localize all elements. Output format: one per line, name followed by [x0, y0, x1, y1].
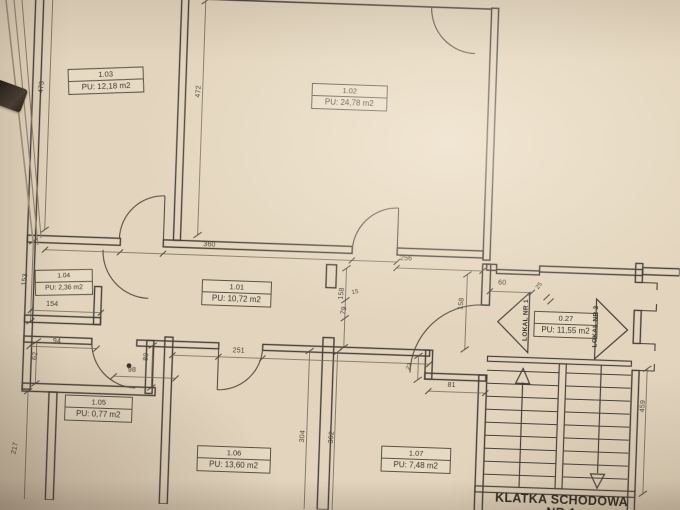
room-label-1-03: 1.03 PU: 12,18 m2: [68, 66, 145, 95]
down-arrow-icon: [590, 474, 604, 488]
room-area: PU: 10,72 m2: [202, 292, 270, 306]
dim-256: 256: [400, 255, 413, 262]
room-number: 1.04: [36, 270, 92, 283]
room-area: PU: 2,36 m2: [36, 282, 92, 295]
dim-81: 81: [447, 382, 455, 389]
dim-304: 304: [299, 430, 307, 443]
room-area: PU: 11,55 m2: [534, 324, 596, 338]
room-label-1-07: 1.07 PU: 7,48 m2: [380, 446, 451, 474]
staircase-label: KLATKA SCHODOWA NR 1: [487, 491, 636, 510]
dim-60: 60: [498, 280, 506, 287]
staircase: [475, 356, 640, 498]
room-area: PU: 13,60 m2: [197, 458, 269, 473]
down-arrow-shaft: [598, 365, 602, 473]
dim-459: 459: [639, 400, 647, 413]
radiator-symbol: [326, 265, 337, 288]
dim-472: 472: [195, 85, 203, 98]
dim-15: 15: [351, 289, 359, 296]
dim-158-left: 158: [338, 287, 346, 300]
room-label-1-06: 1.06 PU: 13,60 m2: [196, 445, 271, 474]
dim-251: 251: [232, 347, 245, 354]
room-label-0-27: 0.27 PU: 11,55 m2: [533, 311, 598, 339]
up-arrow-shaft: [519, 382, 523, 487]
dim-94: 94: [53, 338, 61, 345]
stair-treads-right: [562, 373, 631, 479]
dim-153: 153: [21, 273, 29, 286]
floorplan: 1.03 PU: 12,18 m2 1.02 PU: 24,78 m2 1.01…: [0, 0, 680, 510]
room-area: PU: 0,77 m2: [65, 408, 131, 422]
up-arrow-icon: [516, 368, 531, 383]
room-area: PU: 7,48 m2: [382, 459, 450, 473]
room-label-1-04: 1.04 PU: 2,36 m2: [35, 269, 93, 296]
door-frame-jogs: [639, 283, 657, 371]
page-edge-lines: [0, 0, 60, 260]
dim-302: 302: [328, 431, 336, 444]
dim-154: 154: [46, 301, 59, 308]
room-area: PU: 24,78 m2: [312, 96, 386, 111]
room-label-1-05: 1.05 PU: 0,77 m2: [64, 394, 133, 422]
room-label-1-01: 1.01 PU: 10,72 m2: [201, 279, 272, 307]
dim-360: 360: [203, 241, 216, 248]
floorplan-photo: 1.03 PU: 12,18 m2 1.02 PU: 24,78 m2 1.01…: [0, 0, 680, 510]
dim-89: 89: [142, 352, 150, 361]
dim-98: 98: [128, 367, 136, 374]
room-area: PU: 12,18 m2: [69, 79, 143, 94]
room-label-1-02: 1.02 PU: 24,78 m2: [311, 83, 388, 112]
dim-158-right: 158: [457, 297, 465, 310]
dim-62: 62: [31, 351, 39, 360]
